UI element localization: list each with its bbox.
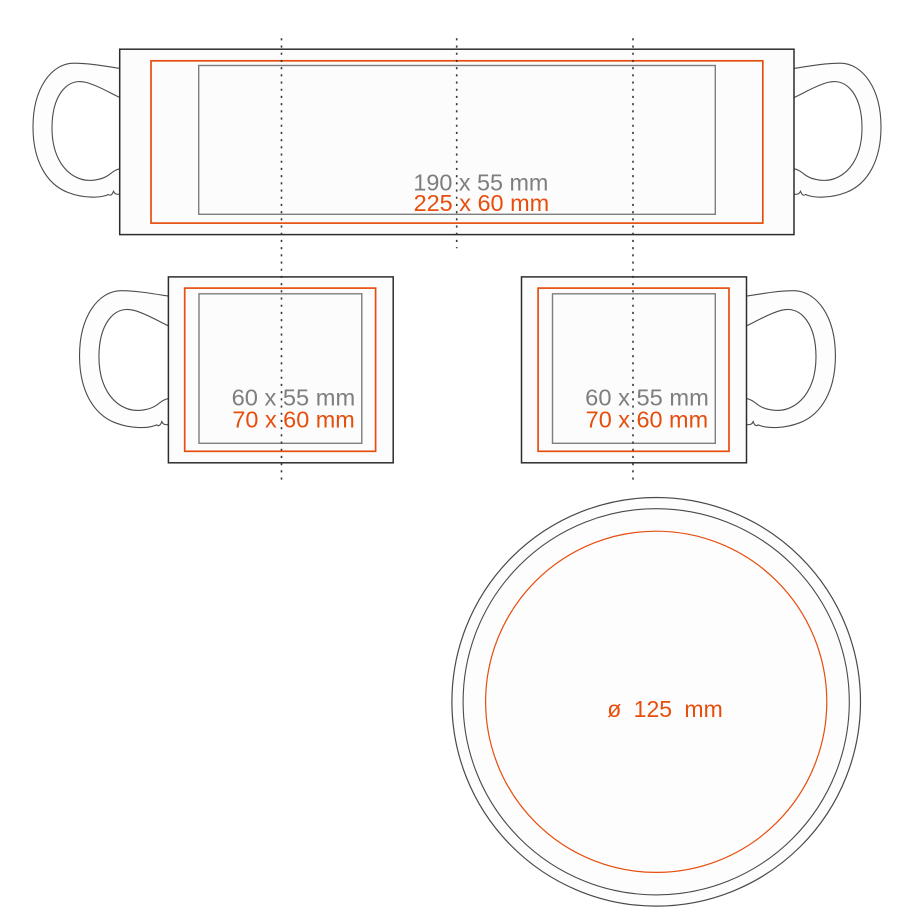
svg-text:225 x 60 mm: 225 x 60 mm: [414, 190, 550, 216]
svg-text:70 x 60 mm: 70 x 60 mm: [232, 406, 354, 432]
svg-text:70 x 60 mm: 70 x 60 mm: [586, 406, 708, 432]
svg-text:ø 125 mm: ø 125 mm: [607, 696, 723, 722]
